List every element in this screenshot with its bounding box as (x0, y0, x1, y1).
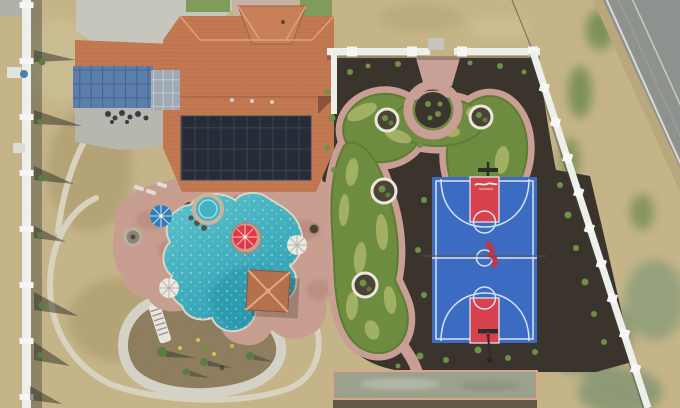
aerial-scene (0, 0, 680, 408)
photo-grain (0, 0, 680, 408)
aerial-photo (0, 0, 680, 408)
